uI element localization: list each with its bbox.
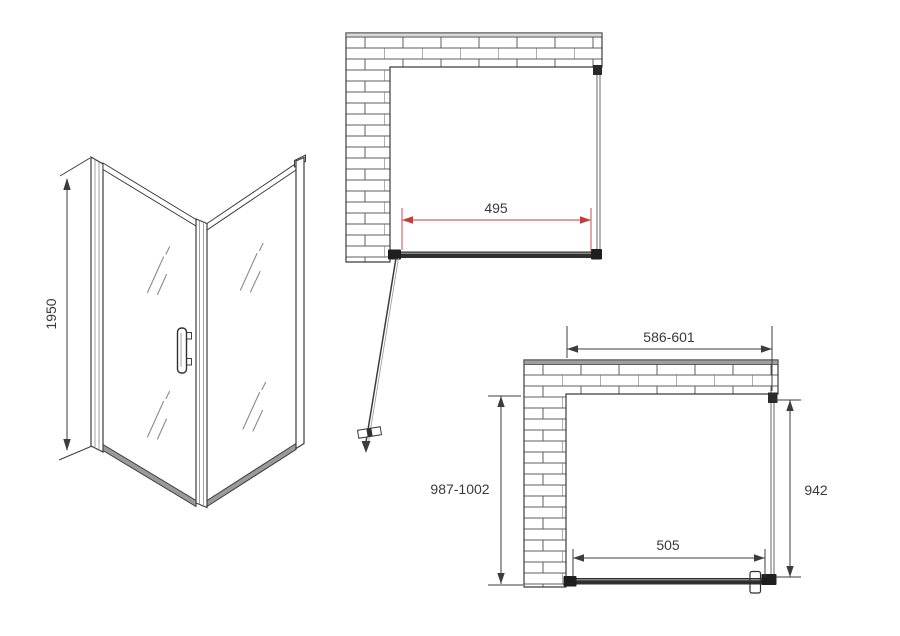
hinge-block xyxy=(388,250,401,260)
side-panel-top-rail xyxy=(207,164,296,231)
side-frame-right xyxy=(296,158,304,449)
height-dimension: 1950 xyxy=(43,158,92,460)
wall-top-edge xyxy=(346,33,602,37)
arrow-up-icon xyxy=(497,396,504,407)
wall-bracket xyxy=(593,65,602,75)
door-handle xyxy=(178,328,192,373)
plan-view-dimensioned: 586-601 987-1002 942 505 xyxy=(430,326,827,593)
arrow-down-icon xyxy=(786,566,793,577)
arrow-right-icon xyxy=(580,216,591,223)
arrow-down-icon xyxy=(497,573,504,584)
corner-block xyxy=(591,249,602,260)
hinge-block xyxy=(564,576,577,587)
arrow-left-icon xyxy=(567,345,578,352)
handle-bar xyxy=(178,328,187,373)
side-glass-panel xyxy=(768,393,778,579)
corner-block xyxy=(762,574,777,585)
arrow-left-icon xyxy=(573,554,584,561)
arrow-up-icon xyxy=(786,400,793,411)
height-label: 1950 xyxy=(43,298,59,329)
bottom-door-dimension: 505 xyxy=(573,537,765,577)
door-width-dimension-red: 495 xyxy=(402,200,591,252)
top-width-label: 586-601 xyxy=(643,329,695,345)
door-frame-left xyxy=(91,157,103,452)
left-depth-label: 987-1002 xyxy=(430,481,489,497)
side-panel-bottom-rail xyxy=(207,444,296,507)
wall-top-edge xyxy=(524,360,778,365)
side-view-3d: 1950 xyxy=(43,155,306,508)
arrow-left-icon xyxy=(402,216,413,223)
shower-enclosure-technical-drawing: 1950 xyxy=(0,0,900,636)
extension-line xyxy=(59,446,92,460)
arrow-right-icon xyxy=(754,554,765,561)
door-profile xyxy=(564,572,777,594)
drawing-canvas: 1950 xyxy=(0,0,900,636)
arrow-down-icon xyxy=(63,439,70,451)
door-width-label: 495 xyxy=(484,200,508,216)
wall-bracket xyxy=(768,393,778,404)
corner-post xyxy=(196,219,207,508)
door-bottom-rail xyxy=(103,445,196,507)
arrow-right-icon xyxy=(761,345,772,352)
extension-line xyxy=(60,158,90,176)
left-depth-dimension: 987-1002 xyxy=(430,396,523,585)
brick-wall xyxy=(346,33,602,262)
right-glass-label: 942 xyxy=(804,482,828,498)
bottom-door-label: 505 xyxy=(656,537,680,553)
enclosure-3d xyxy=(91,155,306,508)
brick-wall xyxy=(524,360,778,587)
door-top-rail xyxy=(103,163,196,226)
open-door-handle xyxy=(358,427,382,438)
threshold-profile xyxy=(388,249,602,260)
arrow-up-icon xyxy=(63,178,70,190)
open-door xyxy=(358,258,399,453)
right-glass-dimension: 942 xyxy=(776,400,828,577)
side-glass-panel xyxy=(593,65,602,252)
door-swing-arrow-icon xyxy=(362,441,371,453)
